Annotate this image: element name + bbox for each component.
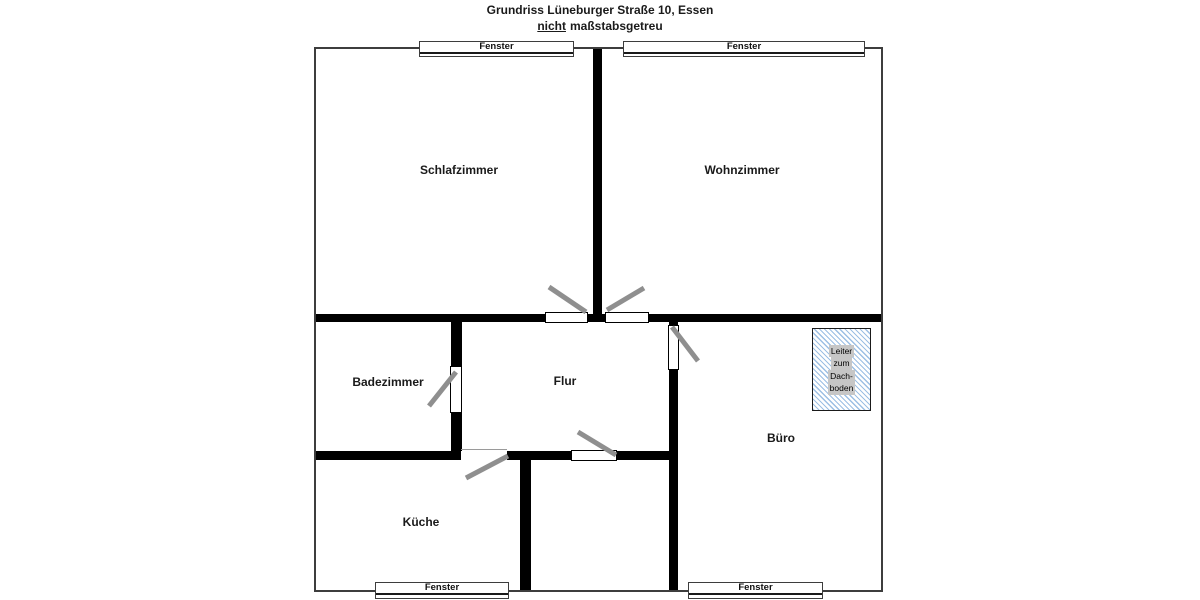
window-label: Fenster [689, 583, 822, 593]
room-label-buero: Büro [767, 431, 795, 445]
window-sill-line [689, 593, 822, 595]
subtitle-emphasis: nicht [537, 19, 566, 33]
wall-middle-horizontal [316, 314, 881, 322]
window-top-left: Fenster [419, 41, 574, 57]
door-opening-bottom-room [571, 450, 617, 461]
window-top-right: Fenster [623, 41, 865, 57]
room-label-flur: Flur [554, 374, 577, 388]
window-bottom-left: Fenster [375, 582, 509, 599]
door-opening-wohnzimmer [605, 312, 649, 323]
wall-badezimmer-kueche [316, 451, 461, 460]
floor-plan-page: Grundriss Lüneburger Straße 10, Essen ni… [0, 0, 1200, 600]
window-sill-line [420, 52, 573, 54]
wall-kueche-abstellraum [520, 451, 531, 590]
plan-title: Grundriss Lüneburger Straße 10, Essen [0, 2, 1200, 18]
attic-ladder-label-line4: boden [828, 382, 856, 395]
door-opening-buero [668, 325, 679, 370]
window-sill-line [624, 52, 864, 54]
window-label: Fenster [376, 583, 508, 593]
room-label-badezimmer: Badezimmer [352, 375, 423, 389]
wall-schlafzimmer-wohnzimmer [593, 49, 602, 314]
attic-ladder-label-line2: zum [831, 357, 851, 370]
room-label-wohnzimmer: Wohnzimmer [704, 163, 779, 177]
plan-header: Grundriss Lüneburger Straße 10, Essen ni… [0, 2, 1200, 34]
plan-subtitle: nichtmaßstabsgetreu [0, 18, 1200, 34]
door-opening-badezimmer [450, 366, 462, 413]
room-label-schlafzimmer: Schlafzimmer [420, 163, 498, 177]
subtitle-rest: maßstabsgetreu [570, 19, 663, 33]
attic-ladder-box: Leiter zum Dach- boden [812, 328, 871, 411]
door-opening-schlafzimmer [545, 312, 588, 323]
attic-ladder-label-line3: Dach- [828, 370, 855, 383]
room-label-kueche: Küche [403, 515, 440, 529]
window-bottom-right: Fenster [688, 582, 823, 599]
window-label: Fenster [624, 42, 864, 52]
attic-ladder-label-line1: Leiter [829, 345, 854, 358]
window-label: Fenster [420, 42, 573, 52]
window-sill-line [376, 593, 508, 595]
door-opening-kueche [461, 449, 507, 450]
